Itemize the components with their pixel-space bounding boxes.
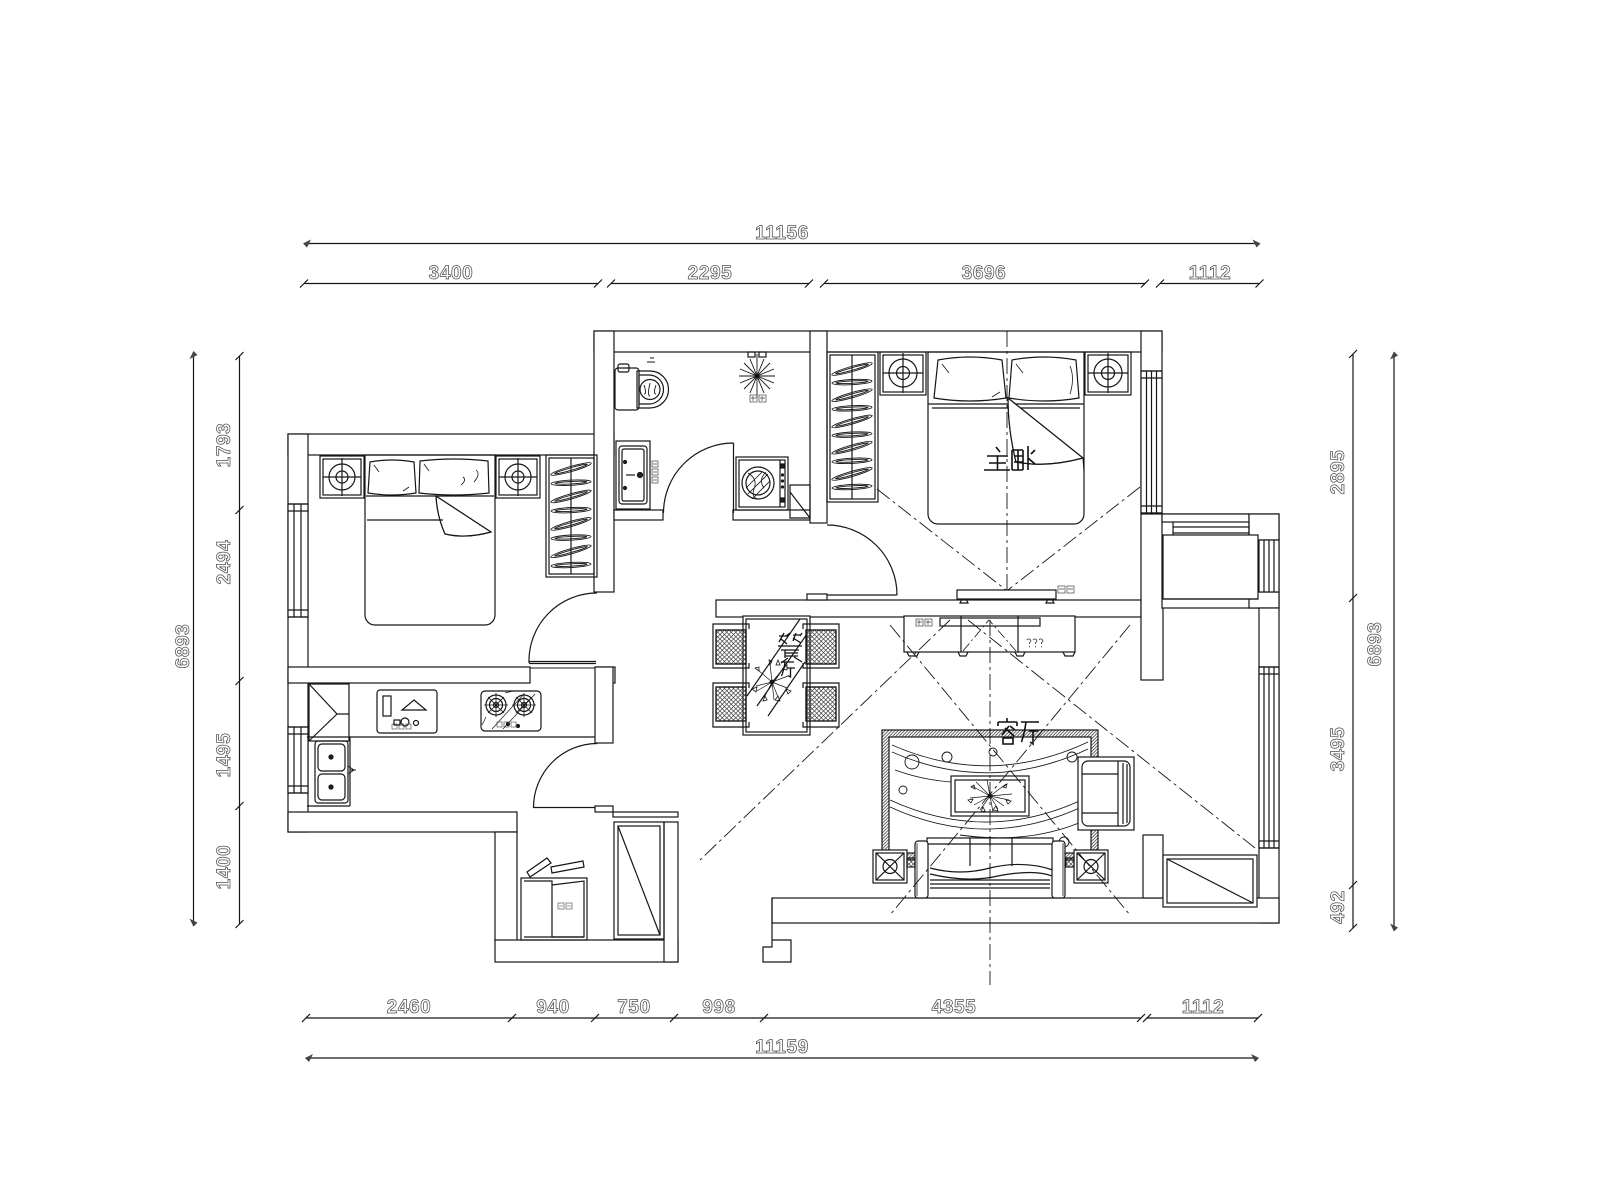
svg-text:1495: 1495 bbox=[214, 733, 235, 778]
svg-text:3696: 3696 bbox=[962, 263, 1007, 284]
svg-text:2895: 2895 bbox=[1328, 450, 1349, 495]
svg-text:11156: 11156 bbox=[755, 223, 809, 244]
svg-text:3495: 3495 bbox=[1328, 727, 1349, 772]
svg-text:750: 750 bbox=[617, 997, 651, 1018]
svg-text:6893: 6893 bbox=[173, 624, 194, 669]
svg-text:940: 940 bbox=[536, 997, 570, 1018]
svg-text:11159: 11159 bbox=[755, 1037, 809, 1058]
svg-text:492: 492 bbox=[1328, 890, 1349, 924]
svg-text:4355: 4355 bbox=[932, 997, 977, 1018]
svg-text:2494: 2494 bbox=[214, 540, 235, 585]
svg-text:1400: 1400 bbox=[214, 845, 235, 890]
svg-text:998: 998 bbox=[702, 997, 736, 1018]
svg-text:1793: 1793 bbox=[214, 423, 235, 468]
svg-text:1112: 1112 bbox=[1182, 997, 1225, 1018]
svg-text:1112: 1112 bbox=[1189, 263, 1232, 284]
svg-text:3400: 3400 bbox=[429, 263, 474, 284]
svg-text:2460: 2460 bbox=[387, 997, 432, 1018]
svg-text:6893: 6893 bbox=[1365, 622, 1386, 667]
svg-text:2295: 2295 bbox=[688, 263, 733, 284]
